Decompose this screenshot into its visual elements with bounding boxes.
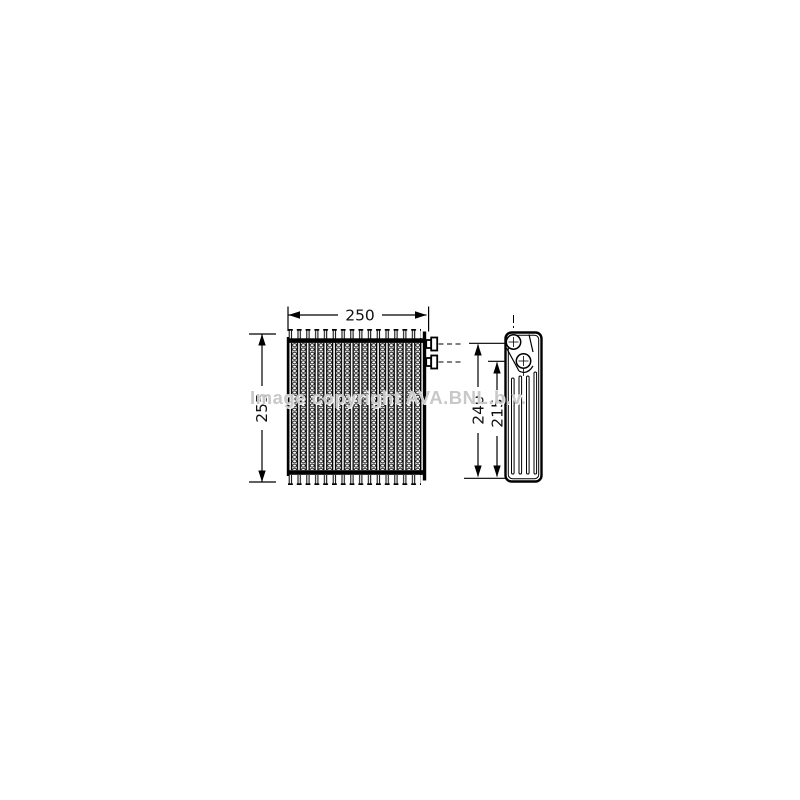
- bottom-header-bar: [287, 470, 423, 475]
- tube-caps-bottom: [288, 475, 421, 485]
- dim-label-width: 250: [345, 307, 375, 325]
- inlet-fitting: [426, 338, 437, 351]
- drawing-canvas: 250 255 240 215: [0, 0, 800, 800]
- outlet-fitting: [426, 356, 437, 369]
- watermark-text: Image copyright AVA.BNL.b.v.: [250, 387, 526, 409]
- tube-caps-top: [288, 329, 421, 339]
- top-header-bar: [287, 338, 423, 343]
